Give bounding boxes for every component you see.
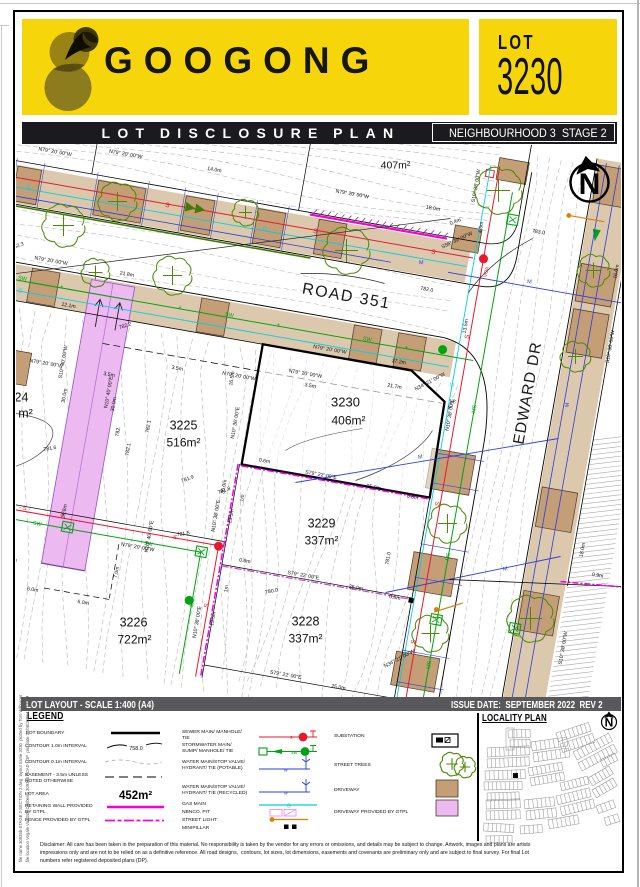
svg-text:781.0: 781.0 [384,551,392,565]
svg-text:6.0m: 6.0m [76,599,88,607]
svg-text:782.1: 782.1 [144,419,152,433]
svg-text:ROAD 351: ROAD 351 [300,280,391,312]
svg-text:s: s [290,735,293,741]
svg-text:25.0m: 25.0m [365,483,380,491]
svg-text:SW: SW [32,520,43,528]
svg-text:780.0: 780.0 [264,587,278,595]
svg-text:N: N [578,167,600,200]
svg-text:M: M [418,259,423,265]
svg-text:14.0m: 14.0m [206,165,221,173]
svg-text:S: S [203,602,211,608]
svg-text:VOA: VOA [482,265,490,277]
svg-text:0.8m: 0.8m [238,557,250,565]
svg-text:13.5m: 13.5m [227,508,235,523]
svg-text:G: G [449,382,456,387]
svg-text:13.5m: 13.5m [209,611,217,626]
svg-text:722m²: 722m² [117,632,151,646]
svg-text:516m²: 516m² [166,435,200,449]
svg-text:13.5m: 13.5m [461,318,469,333]
svg-text:406m²: 406m² [331,413,365,427]
svg-text:N79° 20′ 00″W: N79° 20′ 00″W [28,358,62,370]
svg-text:21.8m: 21.8m [119,270,134,278]
svg-text:782.1: 782.1 [124,442,132,456]
svg-text:N10° 36′ 00″E: N10° 36′ 00″E [229,405,241,438]
svg-text:18.0m: 18.0m [425,204,440,212]
svg-text:24: 24 [16,390,28,404]
svg-text:N79° 20′ 00″W: N79° 20′ 00″W [37,146,71,158]
svg-text:3230: 3230 [331,394,360,409]
svg-text:- S -: - S - [18,504,30,512]
svg-text:4.5m: 4.5m [477,221,485,233]
svg-text:0.9m: 0.9m [591,571,603,579]
svg-text:MS: MS [471,404,478,413]
svg-text:337m²: 337m² [304,533,338,547]
svg-text:N79° 20′ 00″W: N79° 20′ 00″W [335,188,369,200]
svg-text:758.0: 758.0 [129,746,143,752]
svg-text:16.5m: 16.5m [228,370,236,385]
svg-text:7.0m: 7.0m [113,566,121,578]
svg-text:N79° 20′ 00″W: N79° 20′ 00″W [33,255,67,267]
svg-text:782.: 782. [114,426,122,437]
svg-text:S10° 40′ 00″W: S10° 40′ 00″W [57,344,69,378]
svg-text:m²: m² [18,406,33,420]
svg-text:3226: 3226 [119,615,147,629]
svg-text:6.0m: 6.0m [26,586,38,594]
svg-text:N79° 20′ 00″W: N79° 20′ 00″W [108,148,142,160]
svg-text:25.0m: 25.0m [348,583,363,591]
svg-text:w: w [284,768,288,774]
svg-text:3228: 3228 [291,614,319,628]
svg-text:3.5m: 3.5m [171,364,183,372]
svg-text:N: N [605,716,614,730]
svg-text:781.5: 781.5 [176,530,190,538]
svg-text:N10° 38′ 00″E: N10° 38′ 00″E [210,498,222,531]
svg-text:783.0: 783.0 [531,228,545,236]
svg-text:1m: 1m [239,494,246,502]
svg-text:3229: 3229 [307,516,335,530]
svg-text:1m: 1m [223,584,230,592]
svg-text:N79° 20′ 00″W: N79° 20′ 00″W [221,370,255,382]
svg-text:782.0: 782.0 [419,285,433,293]
svg-text:N10° 38′ 00″E: N10° 38′ 00″E [191,605,203,638]
svg-text:452m²: 452m² [119,790,152,802]
svg-text:0.6m: 0.6m [406,493,418,501]
svg-text:18.0m: 18.0m [578,542,586,557]
svg-text:337m²: 337m² [288,631,322,645]
svg-text:G: G [287,804,291,810]
svg-text:w: w [284,791,288,797]
svg-text:N10° 38′ 00″E: N10° 38′ 00″E [16,557,19,590]
svg-text:407m²: 407m² [380,159,410,171]
svg-text:3225: 3225 [169,418,197,432]
svg-text:M: M [527,279,532,285]
svg-text:782.3: 782.3 [16,241,25,251]
svg-text:30.0m: 30.0m [109,396,117,411]
svg-text:EDWARD DR: EDWARD DR [510,340,545,445]
svg-text:sw: sw [291,750,298,756]
